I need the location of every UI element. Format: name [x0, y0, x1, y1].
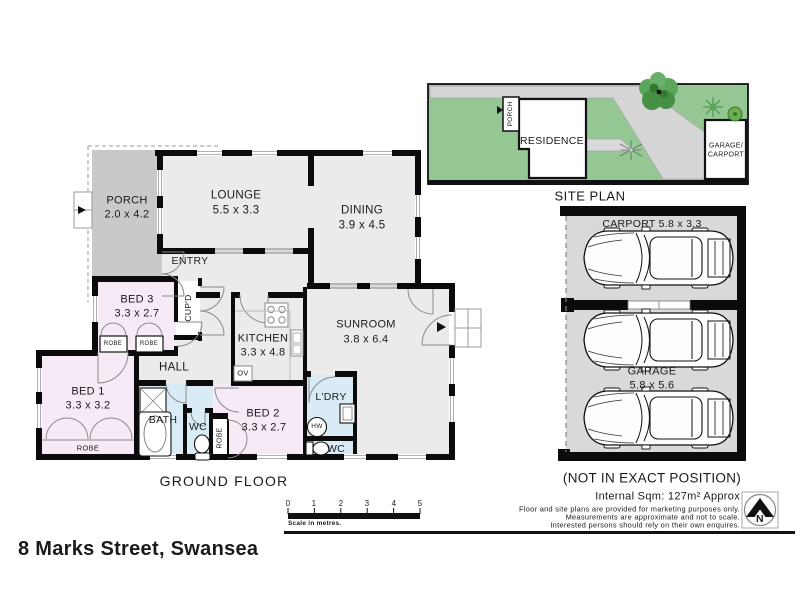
internal-area: Internal Sqm: 127m² Approx [595, 492, 740, 503]
room-label-lounge: LOUNGE [211, 190, 261, 202]
room-label-bed2: BED 2 [246, 409, 279, 420]
laundry-tub-icon [340, 404, 355, 423]
room-label-porch: PORCH [106, 196, 147, 207]
toilet-icon [195, 435, 211, 460]
label-robe: ROBE [140, 341, 158, 347]
parking-plan [558, 206, 746, 461]
label-wc: WC [189, 422, 207, 433]
label-entry: ENTRY [172, 256, 209, 267]
stove-icon [265, 303, 288, 327]
scale-tick: 5 [418, 500, 423, 508]
scale-tick: 4 [392, 500, 397, 508]
garage-label: GARAGE [628, 367, 677, 378]
disclaimer-line: Interested persons should rely on their … [550, 521, 740, 528]
room-label-bed1: BED 1 [71, 387, 104, 398]
scale-tick: 0 [286, 500, 291, 508]
room-dims-bed3: 3.3 x 2.7 [115, 309, 160, 320]
scale-bar [288, 508, 420, 519]
room-label-dining: DINING [341, 205, 383, 217]
label-oven: OV [237, 369, 248, 377]
scale-tick: 1 [312, 500, 317, 508]
porch-step [74, 192, 92, 228]
north-letter: N [756, 514, 764, 525]
label-bath: BATH [149, 415, 177, 426]
label-robe: ROBE [104, 341, 122, 347]
label-hot-water: HW [311, 424, 322, 431]
label-cupboard: CUP'D [184, 294, 193, 321]
room-dims-lounge: 5.5 x 3.3 [213, 205, 260, 217]
steps [455, 309, 481, 347]
carport-label: CARPORT 5.8 x 3.3 [602, 219, 701, 230]
tree-icon [639, 72, 678, 110]
address-title: 8 Marks Street, Swansea [18, 539, 258, 559]
scale-tick: 3 [365, 500, 370, 508]
site-garage-label: CARPORT [708, 152, 744, 159]
toilet-icon [306, 442, 329, 455]
room-label-sunroom: SUNROOM [336, 320, 396, 331]
label-robe: ROBE [217, 427, 224, 448]
room-dims-sunroom: 3.8 x 6.4 [344, 335, 389, 346]
site-plan [428, 72, 748, 185]
scale-tick: 2 [339, 500, 344, 508]
scale-caption: Scale in metres. [288, 521, 341, 527]
site-garage-label: GARAGE/ [709, 143, 743, 150]
label-wc: WC [327, 444, 345, 455]
room-dims-porch: 2.0 x 4.2 [105, 210, 150, 221]
shrub-icon [703, 97, 723, 117]
room-label-kitchen: KITCHEN [238, 334, 288, 345]
room-label-bed3: BED 3 [120, 295, 153, 306]
footer-rule [284, 531, 795, 534]
site-garage-outline [705, 120, 746, 179]
ground-floor-caption: GROUND FLOOR [160, 474, 289, 488]
site-porch-label: PORCH [508, 102, 515, 127]
site-residence-label: RESIDENCE [520, 136, 584, 147]
position-note: (NOT IN EXACT POSITION) [563, 471, 741, 485]
room-dims-kitchen: 3.3 x 4.8 [241, 348, 286, 359]
shower-icon [140, 388, 166, 414]
room-dims-bed1: 3.3 x 3.2 [66, 401, 111, 412]
garage-dims: 5.8 x 5.6 [630, 381, 675, 392]
shrub-icon [728, 107, 742, 121]
room-dims-dining: 3.9 x 4.5 [339, 220, 386, 232]
room-dims-bed2: 3.3 x 2.7 [242, 423, 287, 434]
site-plan-caption: SITE PLAN [555, 190, 626, 203]
label-laundry: L'DRY [315, 392, 346, 403]
label-robe: ROBE [77, 444, 99, 452]
label-hall: HALL [159, 362, 189, 374]
